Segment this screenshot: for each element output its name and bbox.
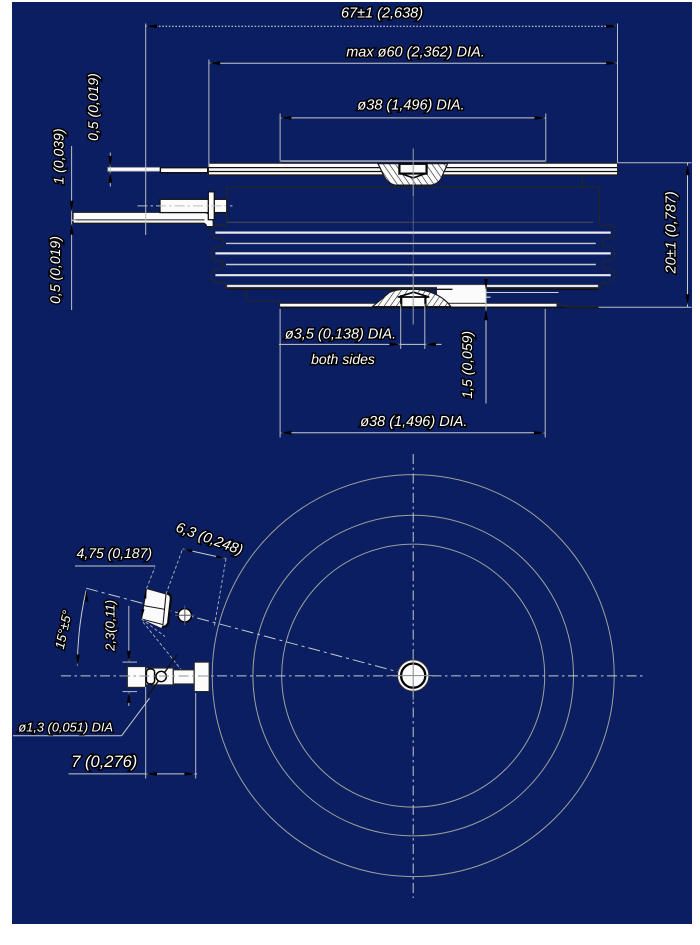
svg-text:1 (0,039): 1 (0,039) [51, 128, 67, 184]
svg-text:4,75 (0,187): 4,75 (0,187) [77, 545, 153, 561]
svg-text:2,3(0,11): 2,3(0,11) [103, 600, 118, 652]
svg-text:max ø60 (2,362) DIA.: max ø60 (2,362) DIA. [346, 45, 485, 61]
svg-text:7 (0,276): 7 (0,276) [71, 753, 137, 771]
svg-text:67±1 (2,638): 67±1 (2,638) [341, 6, 423, 22]
svg-text:ø3,5 (0,138) DIA.: ø3,5 (0,138) DIA. [285, 327, 396, 343]
svg-text:ø1,3 (0,051) DIA: ø1,3 (0,051) DIA [18, 720, 113, 735]
svg-text:both sides: both sides [311, 351, 375, 367]
svg-text:ø38 (1,496) DIA.: ø38 (1,496) DIA. [360, 414, 467, 430]
svg-text:0,5 (0,019): 0,5 (0,019) [85, 73, 101, 141]
svg-text:1,5 (0,059): 1,5 (0,059) [459, 331, 475, 399]
svg-text:ø38 (1,496) DIA.: ø38 (1,496) DIA. [357, 98, 464, 114]
svg-text:0,5 (0,019): 0,5 (0,019) [47, 236, 63, 304]
svg-text:20±1 (0,787): 20±1 (0,787) [664, 191, 680, 274]
